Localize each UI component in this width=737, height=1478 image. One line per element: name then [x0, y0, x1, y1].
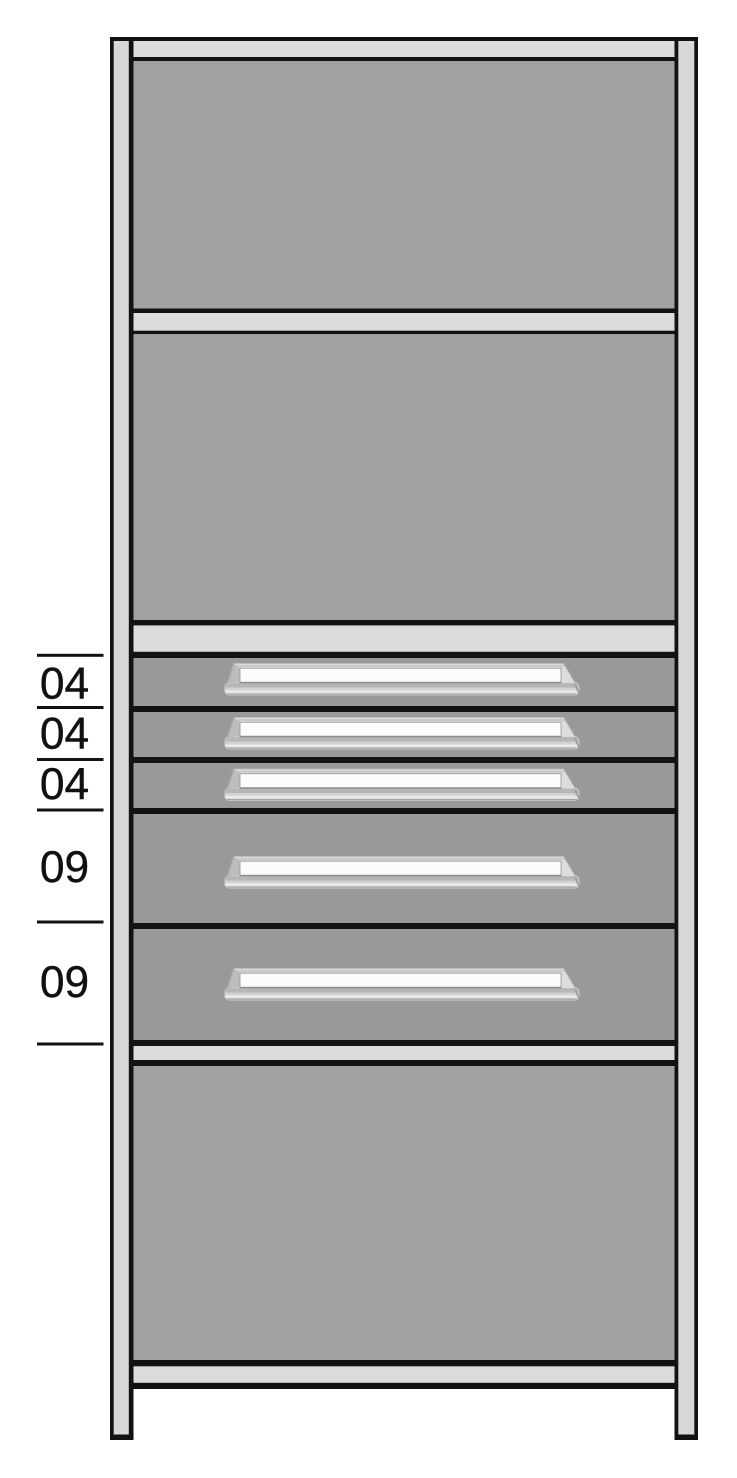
svg-text:09: 09 — [40, 958, 89, 1007]
svg-text:04: 04 — [40, 710, 89, 759]
svg-text:04: 04 — [40, 660, 89, 709]
svg-text:04: 04 — [40, 760, 89, 809]
svg-text:09: 09 — [40, 843, 89, 892]
